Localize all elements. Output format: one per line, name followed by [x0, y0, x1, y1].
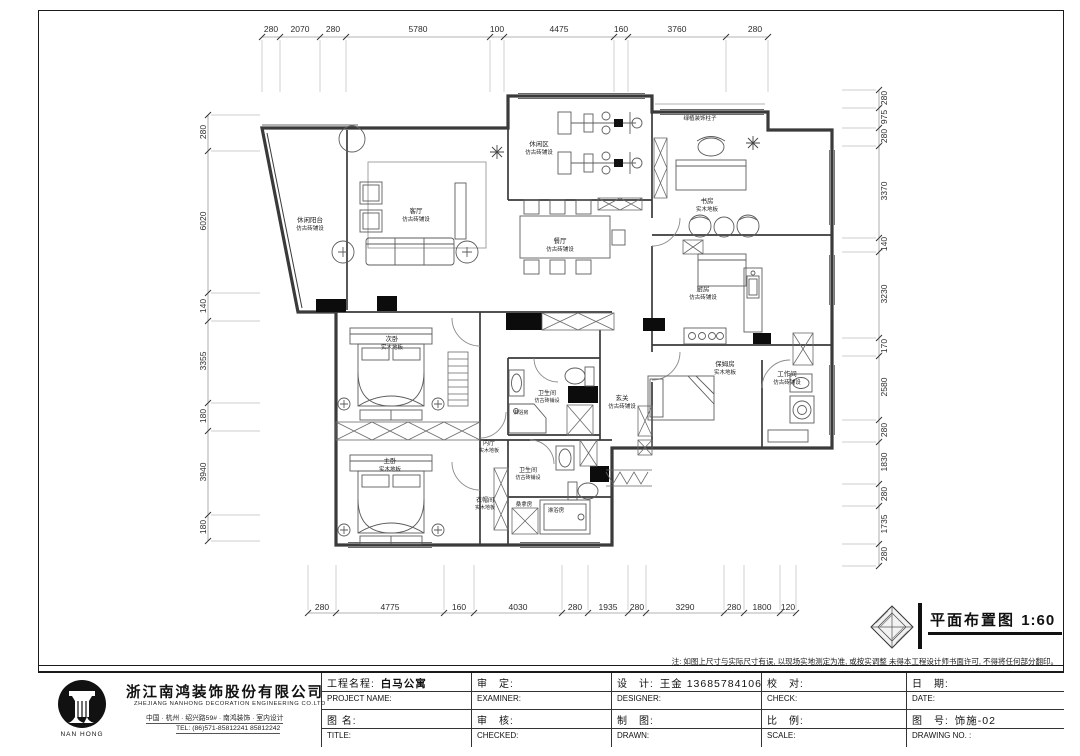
label-shower1: 淋浴房 [513, 409, 528, 416]
project-value: 白马公寓 [381, 678, 427, 690]
titleblock-fields: 工程名程:白马公寓 审 定: 设 计:王金 13685784106 校 对: 日… [322, 673, 1064, 747]
dim-bottom-3: 4030 [501, 601, 535, 613]
bath2-fixtures [540, 446, 598, 534]
dim-top-7: 3760 [660, 23, 694, 35]
label-hall: 内厅 [483, 439, 495, 447]
label-balcony: 休闲阳台 [297, 215, 323, 224]
outer-walls [262, 94, 835, 548]
dim-top-6: 160 [604, 23, 638, 35]
north-diamond-icon [868, 603, 916, 651]
titleblock-top-rule [38, 665, 1064, 666]
svg-text:仿古砖铺设: 仿古砖铺设 [546, 245, 574, 253]
dim-top-3: 5780 [401, 23, 435, 35]
dim-right-2: 280 [878, 119, 890, 153]
label-master: 主卧 [384, 456, 398, 465]
field-draw: 制 图: [612, 710, 762, 729]
field-date-en: DATE: [907, 692, 1064, 710]
svg-text:仿古砖铺设: 仿古砖铺设 [689, 293, 717, 301]
gym-machine [558, 112, 642, 134]
dim-right-11: 1735 [878, 507, 890, 541]
field-project: 工程名程:白马公寓 [322, 673, 472, 692]
label-study: 书房 [701, 196, 714, 205]
label-gym: 休闲区 [529, 139, 549, 148]
svg-text:实木地板: 实木地板 [475, 504, 495, 511]
label-bed2: 次卧 [386, 334, 400, 343]
field-name-en: TITLE: [322, 729, 472, 747]
dim-bottom-4: 280 [558, 601, 592, 613]
title-underline [928, 632, 1062, 635]
dim-right-5: 3230 [878, 277, 890, 311]
field-no: 图 号:饰施-02 [907, 710, 1064, 729]
dim-right-4: 140 [878, 227, 890, 261]
label-foyer: 玄关 [616, 393, 630, 402]
svg-text:仿古砖铺设: 仿古砖铺设 [296, 224, 324, 232]
title-bar-rule [918, 603, 922, 649]
label-work: 工作间 [777, 369, 797, 378]
dim-left-3: 3355 [197, 344, 209, 378]
design-value: 王金 13685784106 [660, 678, 762, 690]
svg-text:仿古砖铺设: 仿古砖铺设 [515, 474, 540, 481]
field-name: 图 名: [322, 710, 472, 729]
drawing-title-cn: 平面布置图 [930, 612, 1015, 629]
dim-top-2: 280 [316, 23, 350, 35]
nanny-bed [648, 376, 714, 420]
dim-top-8: 280 [738, 23, 772, 35]
svg-text:仿古砖铺设: 仿古砖铺设 [534, 397, 559, 404]
label-balcony-note: 绿植装饰柱子 [683, 114, 717, 122]
field-check2: 审 核: [472, 710, 612, 729]
field-ratio: 比 例: [762, 710, 907, 729]
svg-text:仿古砖铺设: 仿古砖铺设 [773, 378, 801, 386]
dim-right-12: 280 [878, 537, 890, 571]
label-sauna: 桑拿房 [516, 500, 533, 508]
svg-text:实木地板: 实木地板 [379, 465, 402, 473]
dimension-lines [205, 34, 882, 616]
label-living: 客厅 [410, 206, 424, 215]
interior-walls [336, 112, 832, 545]
gym-machine [558, 152, 642, 174]
field-check2-en: CHECKED: [472, 729, 612, 747]
dim-left-2: 140 [197, 289, 209, 323]
dim-right-8: 280 [878, 413, 890, 447]
round-column [339, 126, 365, 152]
dim-bottom-10: 120 [771, 601, 805, 613]
company-address: 中国 · 杭州 · 绍兴路59# · 南鸿装饰 · 室内设计 [146, 712, 283, 724]
company-logo-icon [54, 679, 110, 731]
company-logo-text: NAN HONG [54, 731, 110, 738]
company-name-cn: 浙江南鸿装饰股份有限公司 [126, 681, 324, 702]
dim-left-0: 280 [197, 115, 209, 149]
field-draw-en: DRAWN: [612, 729, 762, 747]
field-design: 设 计:王金 13685784106 [612, 673, 762, 692]
dim-left-5: 3940 [197, 455, 209, 489]
dim-bottom-6: 280 [620, 601, 654, 613]
label-closet: 衣帽间 [476, 496, 494, 504]
company-name-en: ZHEJIANG NANHONG DECORATION ENGINEERING … [134, 701, 326, 707]
svg-text:实木地板: 实木地板 [696, 205, 719, 213]
dim-bottom-2: 160 [442, 601, 476, 613]
field-project-en: PROJECT NAME: [322, 692, 472, 710]
svg-text:实木地板: 实木地板 [381, 343, 404, 351]
label-kitchen: 厨房 [697, 284, 710, 293]
dining-table [520, 200, 625, 274]
dim-right-6: 170 [878, 329, 890, 363]
dim-right-7: 2580 [878, 370, 890, 404]
drawing-title-text: 平面布置图 1:60 [930, 609, 1055, 630]
field-date: 日 期: [907, 673, 1064, 692]
label-shower2: 淋浴房 [548, 506, 565, 514]
field-ratio-en: SCALE: [762, 729, 907, 747]
field-examine: 审 定: [472, 673, 612, 692]
field-no-en: DRAWING NO. : [907, 729, 1064, 747]
label-dining: 餐厅 [554, 236, 568, 245]
dim-left-4: 180 [197, 399, 209, 433]
dim-right-10: 280 [878, 477, 890, 511]
dim-bottom-0: 280 [305, 601, 339, 613]
svg-text:仿古砖铺设: 仿古砖铺设 [525, 148, 553, 156]
field-proof: 校 对: [762, 673, 907, 692]
drawing-scale: 1:60 [1021, 612, 1055, 629]
title-block: NAN HONG 浙江南鸿装饰股份有限公司 ZHEJIANG NANHONG D… [38, 671, 1064, 747]
dim-left-1: 6020 [197, 204, 209, 238]
dim-left-6: 180 [197, 510, 209, 544]
svg-text:仿古砖铺设: 仿古砖铺设 [608, 402, 636, 410]
company-tel: TEL: (86)571-85812241 85812242 [176, 725, 280, 734]
dim-bottom-7: 3290 [668, 601, 702, 613]
drawing-no-value: 饰施-02 [955, 715, 996, 727]
sofa [366, 238, 454, 265]
field-proof-en: CHECK: [762, 692, 907, 710]
room-labels: 休闲阳台 仿古砖铺设 客厅 仿古砖铺设 休闲区 仿古砖铺设 餐厅 仿古砖铺设 书… [296, 114, 801, 514]
svg-text:实木地板: 实木地板 [714, 368, 737, 376]
label-nanny: 保姆房 [715, 359, 735, 368]
field-examine-en: EXAMINER: [472, 692, 612, 710]
svg-text:仿古砖铺设: 仿古砖铺设 [402, 215, 430, 223]
dim-top-5: 4475 [542, 23, 576, 35]
drawing-title-block: 平面布置图 1:60 [868, 601, 1064, 653]
field-design-en: DESIGNER: [612, 692, 762, 710]
dim-right-9: 1830 [878, 445, 890, 479]
dim-bottom-1: 4775 [373, 601, 407, 613]
dim-top-1: 2070 [283, 23, 317, 35]
drawing-sheet: 休闲阳台 仿古砖铺设 客厅 仿古砖铺设 休闲区 仿古砖铺设 餐厅 仿古砖铺设 书… [0, 0, 1080, 756]
dim-top-4: 100 [480, 23, 514, 35]
company-cell: NAN HONG 浙江南鸿装饰股份有限公司 ZHEJIANG NANHONG D… [38, 673, 322, 747]
study-desk [676, 137, 759, 238]
dim-right-3: 3370 [878, 174, 890, 208]
svg-text:实木地板: 实木地板 [479, 447, 499, 454]
label-bath2: 卫生间 [519, 466, 537, 474]
column-blocks [316, 296, 771, 482]
label-bath1: 卫生间 [538, 389, 556, 397]
